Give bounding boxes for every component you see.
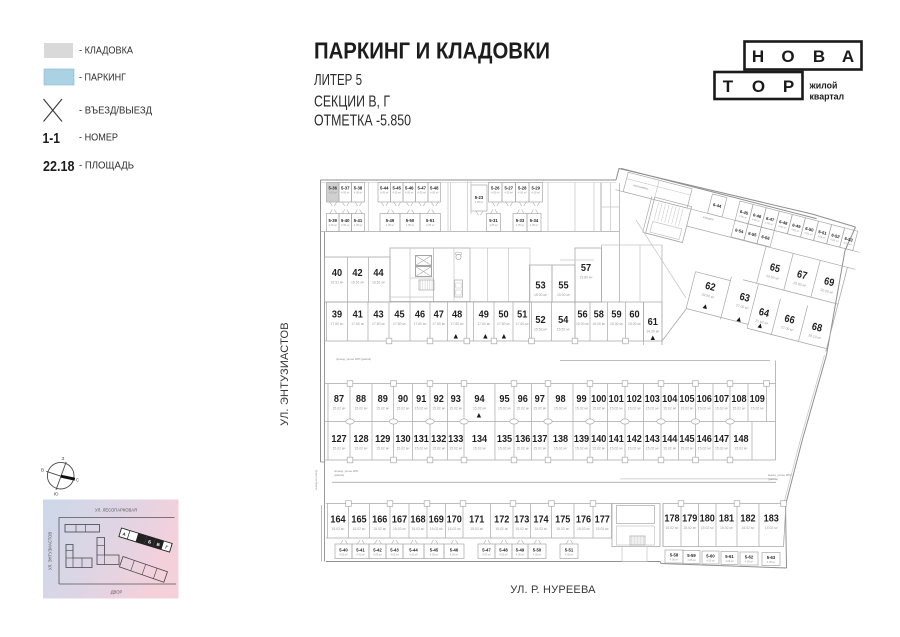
svg-text:15.00 м²: 15.00 м² <box>610 322 624 326</box>
svg-text:- ПЛОЩАДЬ: - ПЛОЩАДЬ <box>79 161 134 172</box>
svg-text:15.02 м²: 15.02 м² <box>498 407 512 411</box>
svg-text:5-45: 5-45 <box>430 548 439 553</box>
svg-text:15.02 м²: 15.02 м² <box>498 447 512 451</box>
svg-text:(рампа): (рампа) <box>334 473 344 477</box>
svg-text:УЛ. ЛЕСОПАРКОВАЯ: УЛ. ЛЕСОПАРКОВАЯ <box>95 508 137 513</box>
svg-text:15.02 м²: 15.02 м² <box>733 407 747 411</box>
svg-text:- КЛАДОВКА: - КЛАДОВКА <box>79 46 133 57</box>
svg-text:5-47: 5-47 <box>482 548 491 553</box>
svg-text:17.60 м²: 17.60 м² <box>497 322 511 326</box>
svg-text:131: 131 <box>414 434 429 445</box>
svg-text:15.52 м²: 15.52 м² <box>534 328 548 332</box>
svg-text:Н: Н <box>752 47 764 66</box>
svg-text:176: 176 <box>576 515 591 526</box>
svg-text:5-46: 5-46 <box>405 186 414 191</box>
svg-text:49: 49 <box>479 310 489 321</box>
svg-text:15.02 м²: 15.02 м² <box>735 447 749 451</box>
svg-text:5-40: 5-40 <box>341 218 350 223</box>
svg-text:15.02 м²: 15.02 м² <box>628 447 642 451</box>
svg-text:47: 47 <box>434 310 444 321</box>
svg-text:15.02 м²: 15.02 м² <box>698 407 712 411</box>
svg-text:105: 105 <box>679 394 694 405</box>
svg-text:15.02 м²: 15.02 м² <box>516 407 530 411</box>
svg-text:15.02 м²: 15.02 м² <box>533 407 547 411</box>
svg-text:127: 127 <box>331 434 346 445</box>
svg-text:59: 59 <box>611 310 621 321</box>
svg-text:55: 55 <box>558 281 568 292</box>
svg-text:15.02 м²: 15.02 м² <box>742 526 756 530</box>
svg-text:15.02 м²: 15.02 м² <box>681 447 695 451</box>
svg-text:169: 169 <box>429 515 444 526</box>
svg-text:4.05 м²: 4.05 м² <box>491 191 500 195</box>
svg-text:4.05 м²: 4.05 м² <box>489 223 498 227</box>
svg-text:15.02 м²: 15.02 м² <box>495 527 509 531</box>
svg-text:15.02 м²: 15.02 м² <box>333 407 347 411</box>
svg-text:15.02 м²: 15.02 м² <box>681 407 695 411</box>
svg-text:15.02 м²: 15.02 м² <box>610 447 624 451</box>
svg-text:15.02 м²: 15.02 м² <box>610 407 624 411</box>
svg-text:44: 44 <box>373 268 383 279</box>
svg-text:15.02 м²: 15.02 м² <box>355 407 369 411</box>
svg-text:167: 167 <box>392 515 407 526</box>
svg-text:15.02 м²: 15.02 м² <box>432 407 446 411</box>
svg-text:94: 94 <box>474 394 484 405</box>
svg-text:4.05 м²: 4.05 м² <box>767 560 776 564</box>
svg-text:4.05 м²: 4.05 м² <box>405 191 414 195</box>
svg-text:5-26: 5-26 <box>491 186 500 191</box>
svg-text:17.60 м²: 17.60 м² <box>432 322 446 326</box>
svg-text:5-63: 5-63 <box>767 555 776 560</box>
svg-text:4.05 м²: 4.05 м² <box>339 553 348 557</box>
svg-text:166: 166 <box>372 515 387 526</box>
svg-text:15.02 м²: 15.02 м² <box>470 527 484 531</box>
svg-text:В: В <box>41 468 44 474</box>
svg-text:172: 172 <box>494 515 509 526</box>
svg-text:5-59: 5-59 <box>687 553 696 558</box>
svg-text:15.02 м²: 15.02 м² <box>415 447 429 451</box>
svg-text:17.60 м²: 17.60 м² <box>393 322 407 326</box>
svg-text:109: 109 <box>750 394 765 405</box>
svg-text:15.02 м²: 15.02 м² <box>449 407 463 411</box>
svg-text:5-34: 5-34 <box>530 218 539 223</box>
svg-text:5-58: 5-58 <box>670 553 679 558</box>
svg-text:91: 91 <box>416 394 426 405</box>
svg-text:53: 53 <box>535 281 545 292</box>
svg-text:42: 42 <box>352 268 362 279</box>
svg-text:5-49: 5-49 <box>386 218 395 223</box>
svg-text:16.51 м²: 16.51 м² <box>331 281 345 285</box>
svg-text:5-38: 5-38 <box>354 186 363 191</box>
svg-text:181: 181 <box>719 514 734 525</box>
svg-text:104: 104 <box>662 394 677 405</box>
svg-text:5-27: 5-27 <box>505 186 514 191</box>
svg-text:4.05 м²: 4.05 м² <box>450 553 459 557</box>
svg-text:15.02 м²: 15.02 м² <box>646 407 660 411</box>
svg-text:5-39: 5-39 <box>329 218 338 223</box>
svg-text:15.02 м²: 15.02 м² <box>415 407 429 411</box>
svg-text:15.02 м²: 15.02 м² <box>373 527 387 531</box>
svg-text:46: 46 <box>415 310 425 321</box>
svg-text:43: 43 <box>373 310 383 321</box>
svg-text:15.02 м²: 15.02 м² <box>592 447 606 451</box>
svg-text:41: 41 <box>353 310 363 321</box>
svg-text:15.02 м²: 15.02 м² <box>533 447 547 451</box>
svg-text:ДВОР: ДВОР <box>111 590 123 595</box>
svg-text:4.05 м²: 4.05 м² <box>354 223 363 227</box>
svg-text:183: 183 <box>764 514 779 525</box>
svg-text:4.05 м²: 4.05 м² <box>670 558 679 562</box>
svg-text:5-40: 5-40 <box>339 548 348 553</box>
svg-text:175: 175 <box>555 515 570 526</box>
svg-text:15.02 м²: 15.02 м² <box>332 527 346 531</box>
svg-text:4.05 м²: 4.05 м² <box>329 223 338 227</box>
svg-text:З: З <box>61 456 64 462</box>
svg-text:проезд, уклон 18% (рампа): проезд, уклон 18% (рампа) <box>336 357 371 361</box>
svg-text:15.02 м²: 15.02 м² <box>376 407 390 411</box>
svg-text:15.02 м²: 15.02 м² <box>698 447 712 451</box>
svg-text:5-60: 5-60 <box>706 554 715 559</box>
svg-text:5-37: 5-37 <box>341 186 350 191</box>
svg-text:170: 170 <box>447 515 462 526</box>
svg-text:137: 137 <box>532 434 547 445</box>
svg-text:5-36: 5-36 <box>329 186 338 191</box>
svg-text:22.18: 22.18 <box>43 159 75 175</box>
svg-text:50: 50 <box>498 310 508 321</box>
svg-text:16.51 м²: 16.51 м² <box>372 281 386 285</box>
svg-text:15.02 м²: 15.02 м² <box>554 447 568 451</box>
svg-text:15.02 м²: 15.02 м² <box>592 407 606 411</box>
svg-text:56: 56 <box>577 310 587 321</box>
svg-text:15.02 м²: 15.02 м² <box>715 407 729 411</box>
svg-text:4.05 м²: 4.05 м² <box>341 223 350 227</box>
svg-text:15.02 м²: 15.02 м² <box>575 447 589 451</box>
svg-text:108: 108 <box>731 394 746 405</box>
svg-text:15.02 м²: 15.02 м² <box>577 527 591 531</box>
svg-text:15.02 м²: 15.02 м² <box>646 447 660 451</box>
svg-text:171: 171 <box>469 515 484 526</box>
svg-text:15.02 м²: 15.02 м² <box>473 407 487 411</box>
svg-text:УЛ. ЭНТУЗИАСТОВ: УЛ. ЭНТУЗИАСТОВ <box>279 322 291 426</box>
svg-text:5-50: 5-50 <box>533 548 542 553</box>
svg-text:15.02 м²: 15.02 м² <box>535 527 549 531</box>
svg-text:15.02 м²: 15.02 м² <box>683 526 697 530</box>
svg-text:квартал: квартал <box>810 92 845 102</box>
svg-text:5-41: 5-41 <box>356 548 365 553</box>
svg-text:5-43: 5-43 <box>390 548 399 553</box>
svg-text:5-49: 5-49 <box>516 548 525 553</box>
svg-text:106: 106 <box>697 394 712 405</box>
svg-text:173: 173 <box>514 515 529 526</box>
svg-text:15.02 м²: 15.02 м² <box>473 447 487 451</box>
svg-text:4.05 м²: 4.05 м² <box>530 223 539 227</box>
svg-text:4.05 м²: 4.05 м² <box>356 553 365 557</box>
svg-text:5-50: 5-50 <box>406 218 415 223</box>
svg-text:15.02 м²: 15.02 м² <box>515 527 529 531</box>
svg-text:98: 98 <box>555 394 565 405</box>
svg-text:15.02 м²: 15.02 м² <box>663 407 677 411</box>
svg-text:5-29: 5-29 <box>532 186 541 191</box>
svg-text:182: 182 <box>740 514 755 525</box>
svg-text:15.02 м²: 15.02 м² <box>575 407 589 411</box>
svg-text:174: 174 <box>533 515 548 526</box>
svg-text:4.05 м²: 4.05 м² <box>518 191 527 195</box>
svg-text:92: 92 <box>434 394 444 405</box>
svg-text:146: 146 <box>697 434 712 445</box>
svg-text:15.02 м²: 15.02 м² <box>516 447 530 451</box>
svg-text:4.05 м²: 4.05 м² <box>532 191 541 195</box>
svg-text:4.05 м²: 4.05 м² <box>406 223 415 227</box>
svg-text:4.05 м²: 4.05 м² <box>516 553 525 557</box>
svg-text:4.05 м²: 4.05 м² <box>393 191 402 195</box>
svg-text:180: 180 <box>700 514 715 525</box>
svg-text:90: 90 <box>398 394 408 405</box>
svg-text:4.05 м²: 4.05 м² <box>430 553 439 557</box>
svg-text:4.05 м²: 4.05 м² <box>687 558 696 562</box>
svg-text:ОТМЕТКА -5.850: ОТМЕТКА -5.850 <box>314 113 411 130</box>
svg-text:5-51: 5-51 <box>426 218 435 223</box>
svg-text:130: 130 <box>395 434 410 445</box>
svg-text:15.02 м²: 15.02 м² <box>432 447 446 451</box>
svg-text:15.02 м²: 15.02 м² <box>397 447 411 451</box>
svg-text:С: С <box>76 478 80 484</box>
svg-text:5-28: 5-28 <box>518 186 527 191</box>
svg-text:4.05 м²: 4.05 м² <box>430 191 439 195</box>
svg-text:143: 143 <box>645 434 660 445</box>
svg-text:15.02 м²: 15.02 м² <box>376 447 390 451</box>
svg-text:5-42: 5-42 <box>373 548 382 553</box>
svg-text:О: О <box>752 77 765 96</box>
svg-text:5-23: 5-23 <box>475 195 484 200</box>
svg-text:4.05 м²: 4.05 м² <box>380 191 389 195</box>
svg-text:5-41: 5-41 <box>354 218 363 223</box>
svg-text:142: 142 <box>627 434 642 445</box>
svg-text:4.05 м²: 4.05 м² <box>386 223 395 227</box>
svg-text:48: 48 <box>452 310 462 321</box>
svg-text:15.02 м²: 15.02 м² <box>412 527 426 531</box>
svg-text:96: 96 <box>518 394 528 405</box>
svg-text:16.51 м²: 16.51 м² <box>351 281 365 285</box>
svg-text:15.02 м²: 15.02 м² <box>430 527 444 531</box>
svg-text:93: 93 <box>451 394 461 405</box>
svg-text:15.02 м²: 15.02 м² <box>554 407 568 411</box>
svg-text:4.05 м²: 4.05 м² <box>499 553 508 557</box>
svg-text:15.02 м²: 15.02 м² <box>666 526 680 530</box>
svg-text:15.00 м²: 15.00 м² <box>628 322 642 326</box>
svg-text:136: 136 <box>515 434 530 445</box>
svg-text:17.60 м²: 17.60 м² <box>372 322 386 326</box>
svg-text:15.02 м²: 15.02 м² <box>448 527 462 531</box>
svg-text:15.00 м²: 15.00 м² <box>534 293 548 297</box>
svg-text:выезд на улицу: выезд на улицу <box>314 469 318 490</box>
svg-text:5-48: 5-48 <box>430 186 439 191</box>
svg-text:жилой: жилой <box>809 81 838 91</box>
svg-text:15.02 м²: 15.02 м² <box>393 527 407 531</box>
svg-text:87: 87 <box>334 394 344 405</box>
svg-text:5-47: 5-47 <box>418 186 427 191</box>
svg-text:15.02 м²: 15.02 м² <box>701 526 715 530</box>
svg-text:А: А <box>842 47 854 66</box>
svg-text:СЕКЦИИ В, Г: СЕКЦИИ В, Г <box>314 94 390 111</box>
svg-text:Ю: Ю <box>54 492 59 498</box>
svg-text:141: 141 <box>609 434 624 445</box>
svg-text:17.60 м²: 17.60 м² <box>477 322 491 326</box>
svg-text:138: 138 <box>553 434 568 445</box>
svg-text:УЛ. ЭНТУЗИАСТОВ: УЛ. ЭНТУЗИАСТОВ <box>48 532 53 571</box>
svg-text:100: 100 <box>591 394 606 405</box>
svg-text:97: 97 <box>535 394 545 405</box>
svg-text:51: 51 <box>517 310 527 321</box>
svg-text:88: 88 <box>356 394 366 405</box>
svg-text:17.60 м²: 17.60 м² <box>351 322 365 326</box>
svg-text:19.80 м²: 19.80 м² <box>580 276 594 280</box>
svg-text:4.05 м²: 4.05 м² <box>565 553 574 557</box>
svg-text:15.02 м²: 15.02 м² <box>355 447 369 451</box>
svg-text:140: 140 <box>591 434 606 445</box>
svg-text:144: 144 <box>662 434 677 445</box>
svg-text:107: 107 <box>714 394 729 405</box>
svg-text:39: 39 <box>332 310 342 321</box>
svg-text:- НОМЕР: - НОМЕР <box>79 133 118 144</box>
svg-text:4.05 м²: 4.05 м² <box>354 191 363 195</box>
svg-text:4.05 м²: 4.05 м² <box>373 553 382 557</box>
svg-text:15.02 м²: 15.02 м² <box>596 527 610 531</box>
svg-text:4.05 м²: 4.05 м² <box>725 559 734 563</box>
svg-text:15.00 м²: 15.00 м² <box>557 293 571 297</box>
svg-text:4.05 м²: 4.05 м² <box>409 553 418 557</box>
svg-text:15.02 м²: 15.02 м² <box>715 447 729 451</box>
svg-text:15.02 м²: 15.02 м² <box>751 407 765 411</box>
svg-text:15.52 м²: 15.52 м² <box>557 328 571 332</box>
svg-text:57: 57 <box>581 263 591 274</box>
svg-text:4.05 м²: 4.05 м² <box>516 223 525 227</box>
svg-text:5-61: 5-61 <box>725 554 734 559</box>
svg-text:52: 52 <box>535 315 545 326</box>
svg-text:147: 147 <box>714 434 729 445</box>
svg-text:132: 132 <box>431 434 446 445</box>
svg-text:- ВЪЕЗД/ВЫЕЗД: - ВЪЕЗД/ВЫЕЗД <box>79 106 152 117</box>
svg-text:99: 99 <box>576 394 586 405</box>
svg-text:58: 58 <box>594 310 604 321</box>
svg-text:15.02 м²: 15.02 м² <box>556 527 570 531</box>
svg-text:Т: Т <box>723 77 734 96</box>
svg-text:4.05 м²: 4.05 м² <box>426 223 435 227</box>
svg-text:40: 40 <box>332 268 342 279</box>
svg-text:15.00 м²: 15.00 м² <box>576 322 590 326</box>
svg-text:17.60 м²: 17.60 м² <box>516 322 530 326</box>
svg-text:О: О <box>781 47 794 66</box>
svg-text:5-44: 5-44 <box>409 548 418 553</box>
svg-text:45: 45 <box>394 310 404 321</box>
svg-text:4.05 м²: 4.05 м² <box>505 191 514 195</box>
svg-text:УЛ. Р. НУРЕЕВА: УЛ. Р. НУРЕЕВА <box>510 584 596 596</box>
svg-text:5-51: 5-51 <box>565 548 574 553</box>
svg-text:4.05 м²: 4.05 м² <box>745 560 754 564</box>
svg-text:17.60 м²: 17.60 м² <box>331 322 345 326</box>
svg-text:4.05 м²: 4.05 м² <box>390 553 399 557</box>
svg-text:15.02 м²: 15.02 м² <box>353 527 367 531</box>
svg-text:134: 134 <box>472 434 487 445</box>
svg-text:54: 54 <box>558 315 568 326</box>
svg-text:15.02 м²: 15.02 м² <box>397 407 411 411</box>
svg-text:5-62: 5-62 <box>745 555 754 560</box>
svg-text:148: 148 <box>733 434 748 445</box>
svg-text:Р: Р <box>783 77 794 96</box>
svg-text:177: 177 <box>595 515 610 526</box>
svg-text:(рампа): (рампа) <box>768 477 778 481</box>
svg-text:15.02 м²: 15.02 м² <box>663 447 677 451</box>
svg-text:89: 89 <box>378 394 388 405</box>
svg-text:15.02 м²: 15.02 м² <box>449 447 463 451</box>
svg-text:5-46: 5-46 <box>450 548 459 553</box>
svg-text:15.02 м²: 15.02 м² <box>333 447 347 451</box>
svg-text:4.05 м²: 4.05 м² <box>418 191 427 195</box>
svg-text:ЛИТЕР 5: ЛИТЕР 5 <box>314 72 362 89</box>
svg-text:15.00 м²: 15.00 м² <box>592 322 606 326</box>
svg-text:4.05 м²: 4.05 м² <box>706 559 715 563</box>
svg-text:164: 164 <box>330 515 345 526</box>
svg-text:145: 145 <box>679 434 694 445</box>
svg-text:4.05 м²: 4.05 м² <box>482 553 491 557</box>
svg-text:5-44: 5-44 <box>380 186 389 191</box>
svg-text:133: 133 <box>448 434 463 445</box>
svg-text:95: 95 <box>499 394 509 405</box>
svg-text:103: 103 <box>645 394 660 405</box>
svg-text:102: 102 <box>627 394 642 405</box>
svg-text:61: 61 <box>648 317 658 328</box>
svg-text:17.60 м²: 17.60 м² <box>451 322 465 326</box>
svg-text:15.02 м²: 15.02 м² <box>720 526 734 530</box>
svg-text:4.05 м²: 4.05 м² <box>533 553 542 557</box>
svg-text:135: 135 <box>497 434 512 445</box>
svg-text:ПАРКИНГ И КЛАДОВКИ: ПАРКИНГ И КЛАДОВКИ <box>314 38 550 64</box>
svg-text:5-33: 5-33 <box>516 218 525 223</box>
svg-text:5-31: 5-31 <box>489 218 498 223</box>
svg-text:1-1: 1-1 <box>43 131 61 147</box>
svg-text:17.60 м²: 17.60 м² <box>414 322 428 326</box>
svg-text:101: 101 <box>609 394 624 405</box>
svg-text:139: 139 <box>574 434 589 445</box>
svg-text:165: 165 <box>351 515 366 526</box>
svg-text:5-45: 5-45 <box>393 186 402 191</box>
svg-text:5-48: 5-48 <box>499 548 508 553</box>
svg-text:128: 128 <box>353 434 368 445</box>
svg-text:178: 178 <box>664 514 679 525</box>
svg-text:14.30 м²: 14.30 м² <box>646 330 660 334</box>
svg-text:15.02 м²: 15.02 м² <box>628 407 642 411</box>
svg-text:179: 179 <box>682 514 697 525</box>
svg-text:60: 60 <box>629 310 639 321</box>
svg-text:4.05 м²: 4.05 м² <box>341 191 350 195</box>
svg-text:129: 129 <box>375 434 390 445</box>
svg-text:В: В <box>813 47 825 66</box>
svg-text:- ПАРКИНГ: - ПАРКИНГ <box>79 73 126 84</box>
svg-text:4.05 м²: 4.05 м² <box>329 191 338 195</box>
svg-text:4.05 м²: 4.05 м² <box>475 200 484 204</box>
svg-text:15.02 м²: 15.02 м² <box>765 526 779 530</box>
svg-text:168: 168 <box>410 515 425 526</box>
